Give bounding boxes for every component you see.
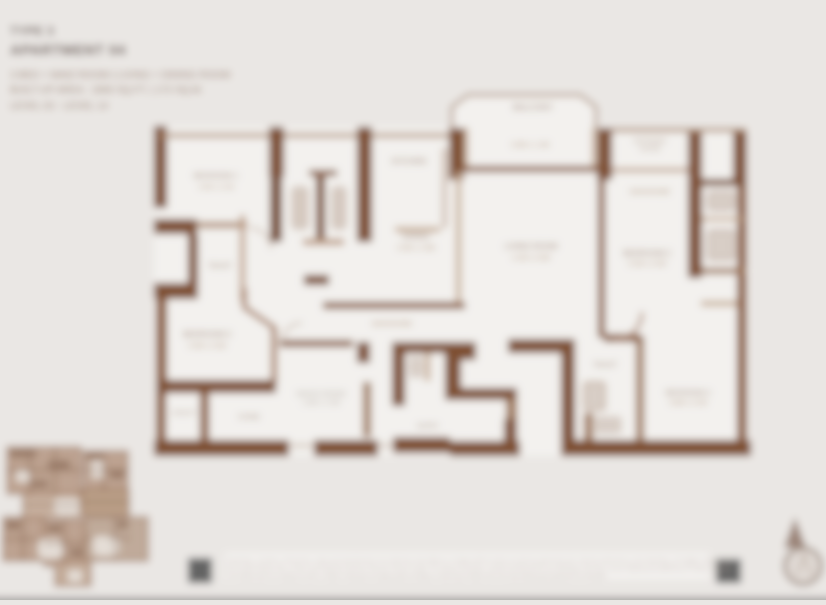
svg-text:BEDROOM 2: BEDROOM 2 (623, 249, 672, 258)
svg-text:4.2M x 5.6M: 4.2M x 5.6M (512, 255, 551, 262)
svg-text:BALCONY: BALCONY (513, 102, 554, 112)
svg-text:3.2M x 3.4M: 3.2M x 3.4M (628, 261, 667, 268)
svg-text:3.0M x 2.8M: 3.0M x 2.8M (397, 245, 436, 252)
svg-text:ENTRANCE: ENTRANCE (633, 139, 666, 145)
svg-text:Disclaimer: All plans, dimensi: Disclaimer: All plans, dimensions, areas… (227, 557, 732, 562)
svg-text:BEDROOM 1: BEDROOM 1 (193, 171, 238, 180)
svg-text:FOYER: FOYER (640, 147, 661, 153)
svg-text:3.6M x 1.4M: 3.6M x 1.4M (511, 142, 550, 149)
svg-text:KITCHEN: KITCHEN (391, 157, 426, 166)
svg-text:BEDROOM 4: BEDROOM 4 (665, 388, 710, 397)
svg-text:3.6M x 3.2M: 3.6M x 3.2M (669, 400, 708, 407)
svg-text:TOILET: TOILET (593, 362, 618, 369)
svg-text:TOILET: TOILET (208, 263, 233, 270)
svg-text:APARTMENT 04: APARTMENT 04 (10, 43, 126, 59)
svg-text:1.8M x 2.0M: 1.8M x 2.0M (302, 400, 341, 407)
svg-text:STORE: STORE (238, 414, 261, 421)
svg-text:WARDROBE: WARDROBE (372, 321, 413, 328)
svg-text:3.4M x 3.2M: 3.4M x 3.2M (198, 184, 234, 191)
svg-text:ENTRY: ENTRY (417, 423, 440, 430)
svg-text:UTILITY: UTILITY (172, 410, 197, 417)
svg-text:LEVEL 02 - LEVEL 14: LEVEL 02 - LEVEL 14 (10, 101, 109, 112)
svg-text:BEDROOM 3: BEDROOM 3 (183, 330, 232, 339)
svg-text:MAIDS ROOM: MAIDS ROOM (296, 389, 345, 398)
svg-text:This material does not constit: This material does not constitute an off… (227, 574, 607, 579)
svg-text:WARDROBE: WARDROBE (630, 189, 671, 196)
svg-text:LIVING ROOM: LIVING ROOM (504, 242, 558, 251)
svg-text:3 BED + MAID ROOM | LIVING + D: 3 BED + MAID ROOM | LIVING + DINING ROOM (10, 70, 230, 81)
svg-text:3.4M x 3.0M: 3.4M x 3.0M (188, 343, 227, 350)
svg-text:DINING: DINING (402, 232, 430, 241)
svg-text:BUILT-UP AREA : 1856 SQ.FT. |: BUILT-UP AREA : 1856 SQ.FT. | 172 SQ.M. (10, 85, 203, 96)
svg-text:Purchasers should rely on thei: Purchasers should rely on their own enqu… (227, 568, 732, 573)
svg-text:artist impressions only. Areas: artist impressions only. Areas are measu… (227, 563, 732, 568)
svg-text:TYPE 3: TYPE 3 (10, 24, 54, 38)
